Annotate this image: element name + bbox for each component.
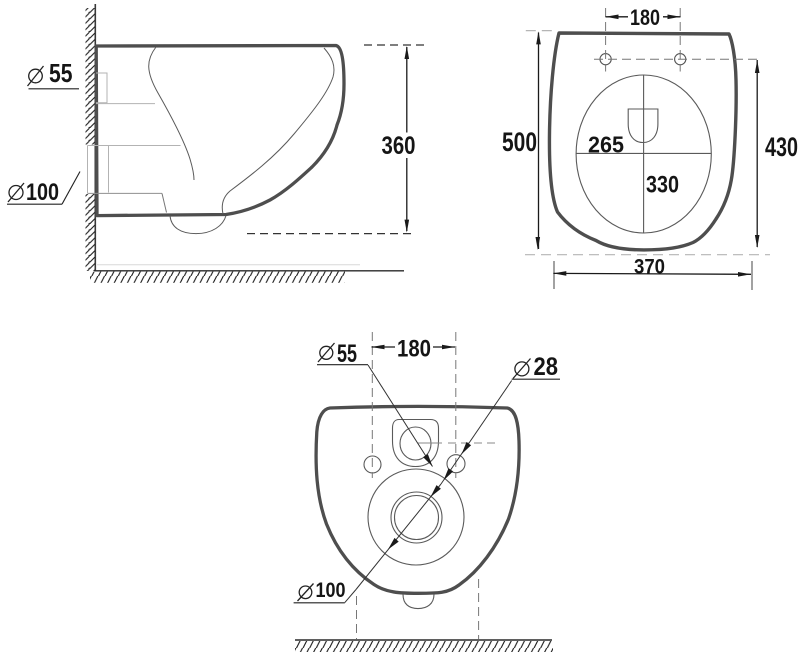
svg-text:180: 180 — [397, 336, 431, 363]
svg-text:430: 430 — [765, 132, 798, 162]
svg-text:180: 180 — [630, 5, 660, 30]
svg-text:28: 28 — [534, 353, 559, 381]
svg-text:330: 330 — [646, 172, 679, 199]
svg-text:500: 500 — [502, 127, 537, 157]
svg-text:265: 265 — [588, 131, 624, 157]
svg-text:370: 370 — [634, 256, 665, 279]
svg-text:100: 100 — [316, 578, 346, 602]
svg-text:55: 55 — [337, 340, 357, 368]
svg-text:55: 55 — [49, 58, 73, 88]
svg-text:360: 360 — [382, 132, 416, 160]
svg-text:100: 100 — [26, 179, 59, 206]
